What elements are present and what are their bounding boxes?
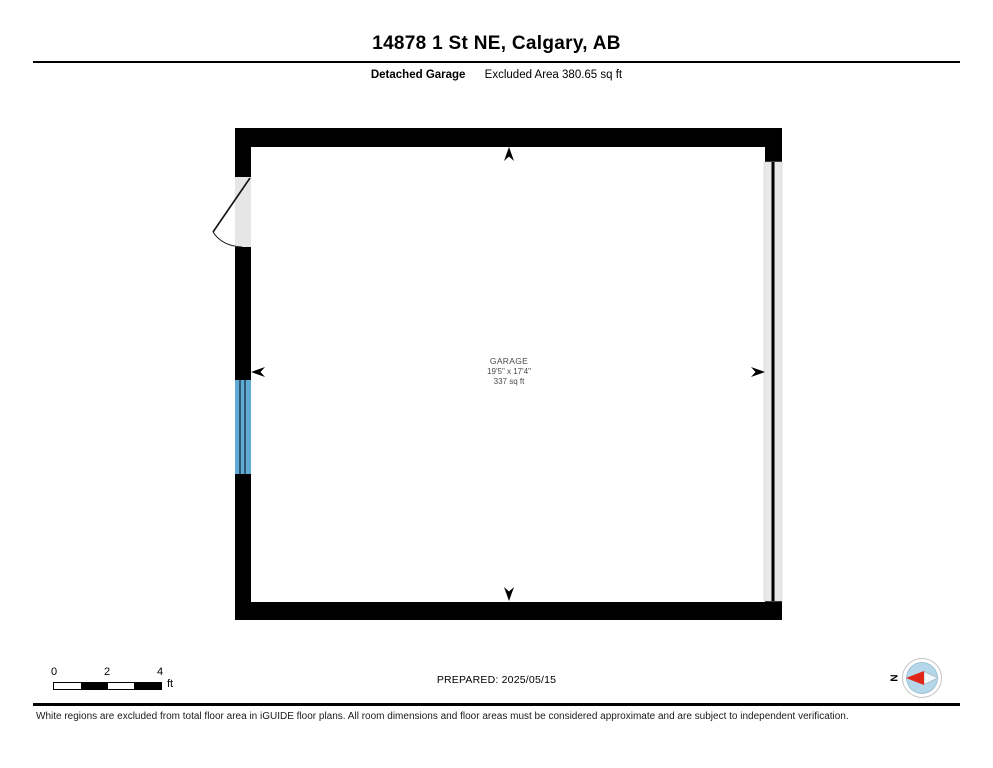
- garage-door-line: [772, 162, 775, 601]
- wall-left-middle: [235, 247, 251, 380]
- wall-left-lower: [235, 474, 251, 620]
- prepared-date: PREPARED: 2025/05/15: [0, 674, 993, 686]
- dimension-arrow-down-icon: [504, 587, 514, 601]
- wall-top: [235, 128, 782, 147]
- dimension-arrow-right-icon: [751, 367, 765, 377]
- room-dimensions: 19'5" x 17'4": [487, 367, 531, 376]
- floorplan-page: 14878 1 St NE, Calgary, AB Detached Gara…: [0, 0, 993, 768]
- wall-bottom: [235, 602, 782, 620]
- room-name: GARAGE: [490, 356, 528, 366]
- wall-right-top-stub: [765, 128, 782, 162]
- floor-name: Detached Garage: [371, 69, 466, 81]
- compass-icon: N: [888, 655, 948, 701]
- room-area: 337 sq ft: [494, 377, 525, 386]
- dimension-arrow-left-icon: [251, 367, 265, 377]
- excluded-area-label: Excluded Area 380.65 sq ft: [485, 69, 622, 81]
- disclaimer-text: White regions are excluded from total fl…: [36, 711, 973, 722]
- dimension-arrow-up-icon: [504, 147, 514, 161]
- compass-north-label: N: [890, 674, 901, 681]
- wall-left-upper: [235, 128, 251, 177]
- footer-divider: [33, 703, 960, 706]
- page-title: 14878 1 St NE, Calgary, AB: [0, 33, 993, 55]
- plan-subtitle: Detached Garage Excluded Area 380.65 sq …: [0, 69, 993, 81]
- header-divider: [33, 61, 960, 63]
- wall-right-bottom-stub: [765, 601, 782, 620]
- floorplan-drawing: GARAGE 19'5" x 17'4" 337 sq ft: [200, 118, 800, 628]
- window: [235, 380, 251, 474]
